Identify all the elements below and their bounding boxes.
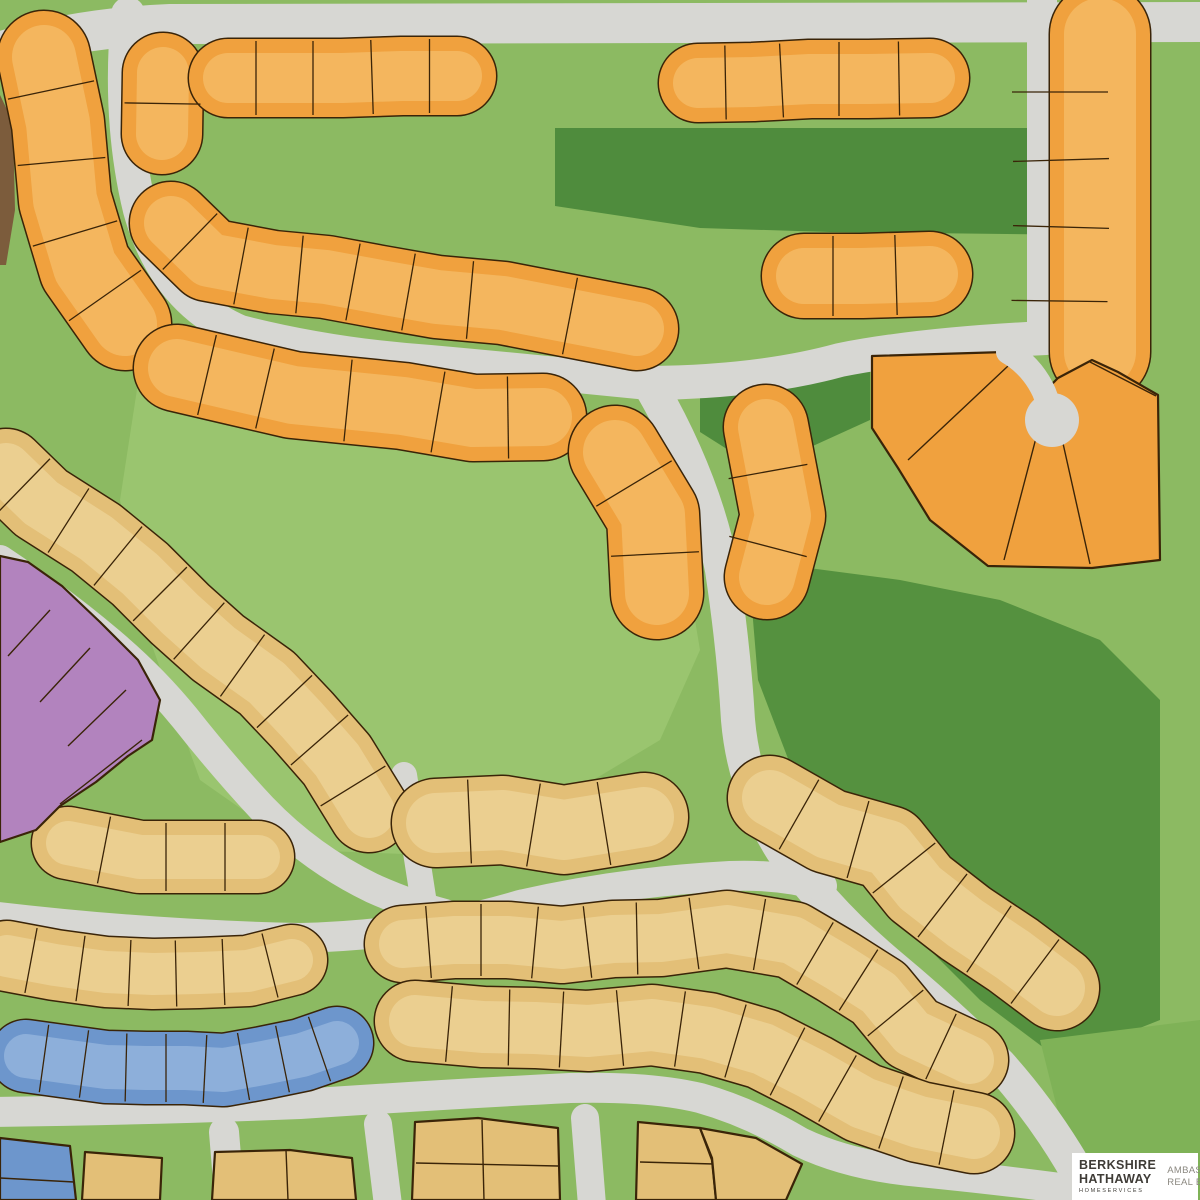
logo-line1: BERKSHIRE xyxy=(1079,1159,1156,1173)
logo-left: BERKSHIRE HATHAWAY HOMESERVICES xyxy=(1079,1159,1156,1194)
logo-right2: REAL ESTATE xyxy=(1167,1177,1200,1188)
logo-right1: AMBASSADOR xyxy=(1167,1165,1200,1176)
logo-right: AMBASSADOR REAL ESTATE xyxy=(1167,1165,1200,1188)
plat-map-stage: BERKSHIRE HATHAWAY HOMESERVICES AMBASSAD… xyxy=(0,0,1200,1200)
logo-line3: HOMESERVICES xyxy=(1079,1188,1156,1194)
plat-map-svg xyxy=(0,0,1200,1200)
logo-line2: HATHAWAY xyxy=(1079,1173,1156,1187)
berkshire-hathaway-logo: BERKSHIRE HATHAWAY HOMESERVICES AMBASSAD… xyxy=(1072,1153,1198,1200)
